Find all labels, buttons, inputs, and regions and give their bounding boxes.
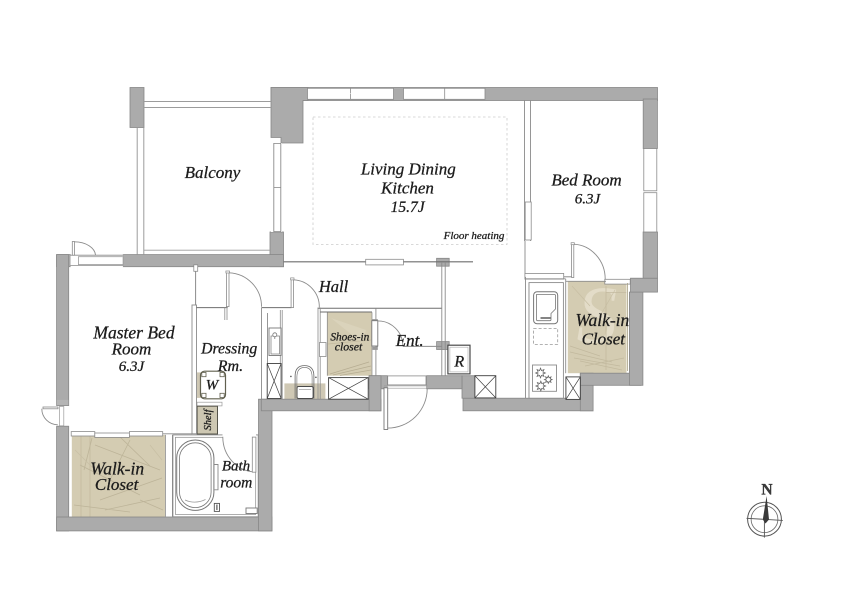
svg-text:6.3J: 6.3J [575,192,602,208]
svg-text:Hall: Hall [318,277,349,296]
svg-text:Living Dining: Living Dining [360,160,456,179]
svg-text:Shelf: Shelf [203,407,214,430]
svg-text:Bath: Bath [222,459,250,475]
svg-text:Balcony: Balcony [185,163,241,182]
svg-text:15.7J: 15.7J [391,199,426,216]
svg-text:Dressing: Dressing [200,340,257,357]
svg-text:Kitchen: Kitchen [380,179,434,198]
svg-text:N: N [761,482,772,499]
svg-text:Closet: Closet [582,330,627,349]
svg-text:R: R [453,353,464,370]
svg-text:W: W [206,378,220,394]
svg-text:Floor heating: Floor heating [443,230,505,242]
svg-text:6.3J: 6.3J [119,359,146,375]
svg-text:Walk-in: Walk-in [576,310,630,330]
svg-text:Rm.: Rm. [217,358,243,375]
svg-text:Closet: Closet [95,475,140,494]
svg-text:Bed Room: Bed Room [551,171,621,190]
svg-text:Room: Room [111,340,152,359]
svg-text:closet: closet [335,340,363,354]
svg-text:room: room [220,475,252,492]
svg-text:Ent.: Ent. [395,331,424,350]
